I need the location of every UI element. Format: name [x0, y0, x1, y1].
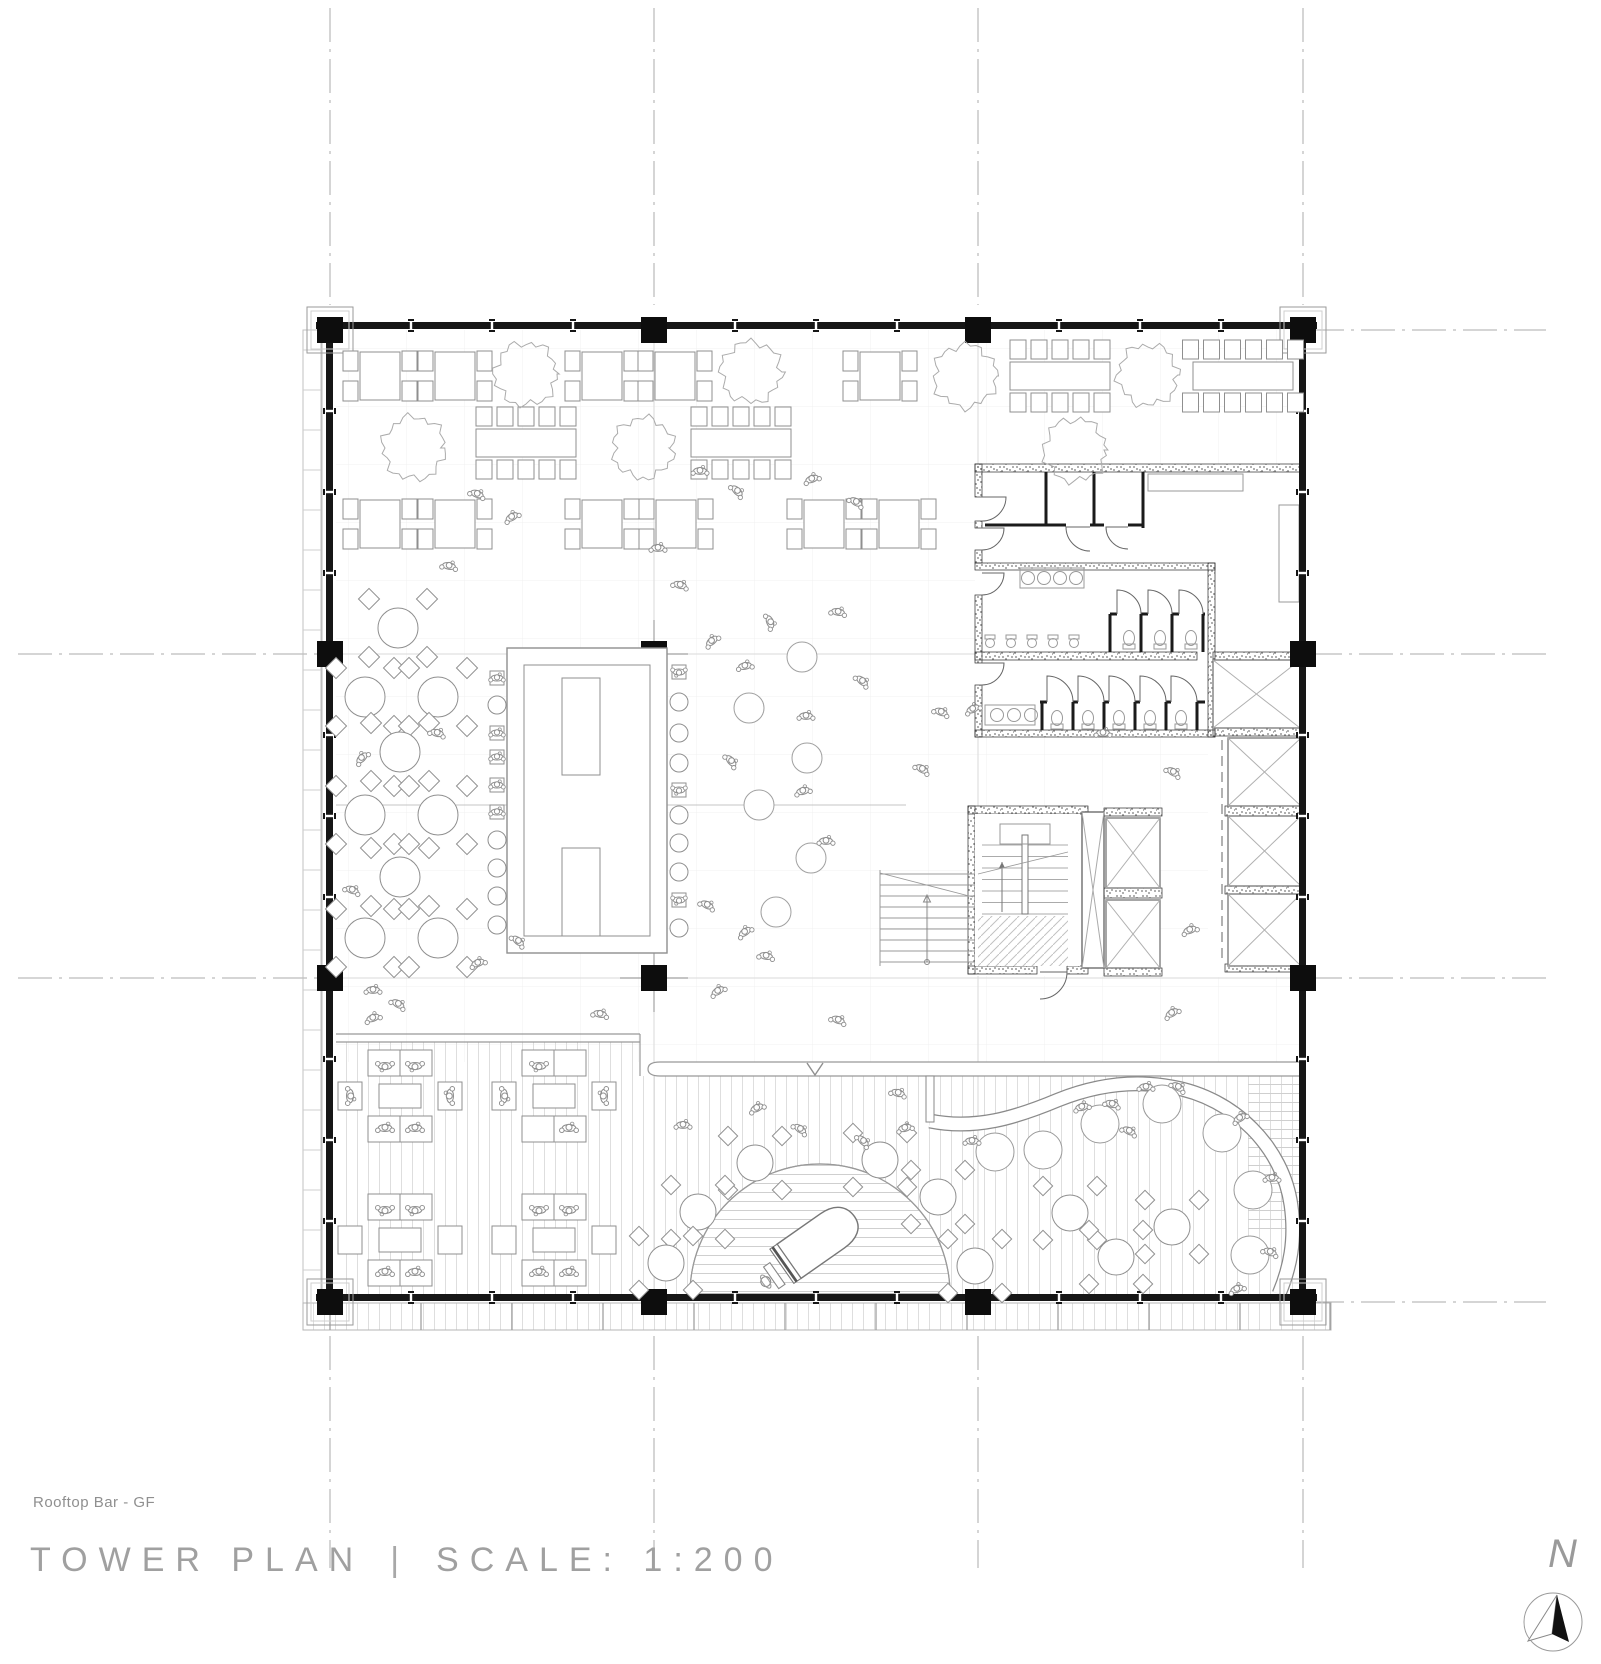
plan-sublabel: Rooftop Bar - GF	[33, 1494, 155, 1511]
plan-title-row: TOWER PLAN|SCALE: 1:200	[30, 1541, 784, 1580]
north-label: N	[1548, 1532, 1577, 1577]
plan-title: TOWER PLAN	[30, 1541, 364, 1579]
plan-sheet: Rooftop Bar - GF TOWER PLAN|SCALE: 1:200…	[0, 0, 1601, 1664]
title-separator: |	[390, 1541, 410, 1579]
floor-plan-drawing	[0, 0, 1601, 1664]
plan-scale: SCALE: 1:200	[436, 1541, 783, 1579]
